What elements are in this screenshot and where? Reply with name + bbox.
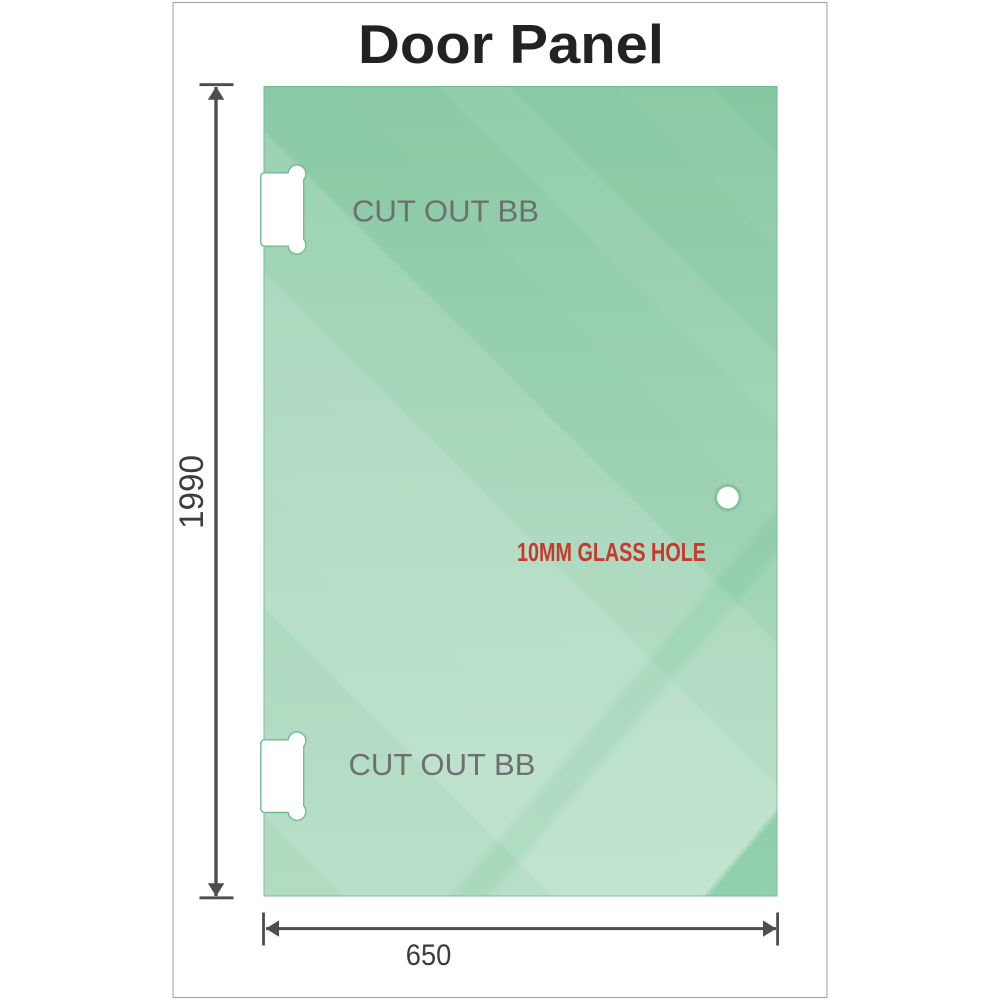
svg-text:650: 650 [406,939,452,972]
svg-text:1990: 1990 [173,455,211,529]
svg-text:10MM GLASS HOLE: 10MM GLASS HOLE [517,539,706,567]
svg-text:CUT OUT BB: CUT OUT BB [352,194,539,229]
svg-text:CUT OUT BB: CUT OUT BB [349,747,536,782]
svg-text:Door Panel: Door Panel [358,13,664,75]
